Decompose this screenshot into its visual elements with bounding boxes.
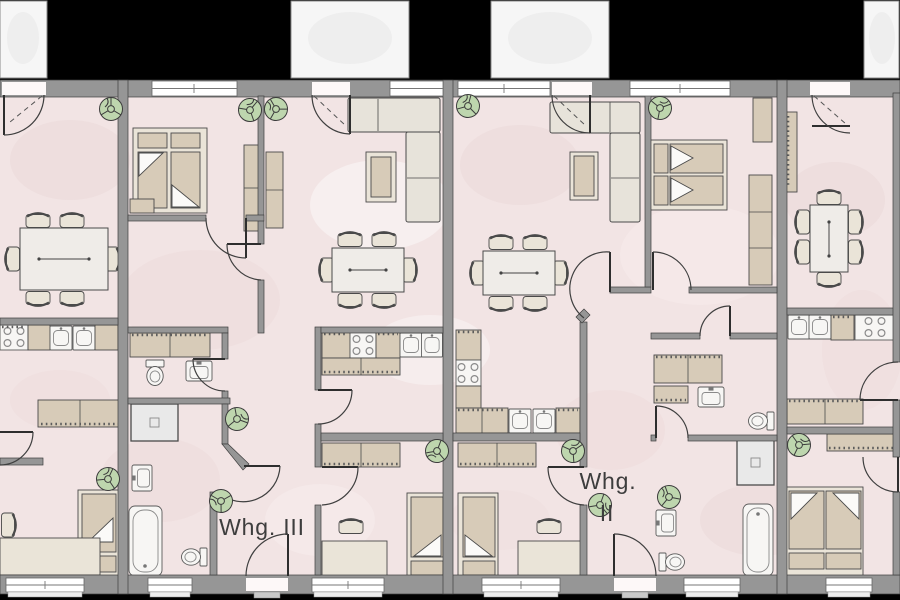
window [152,81,237,96]
desk-chair [339,519,363,533]
sideboard [38,400,122,427]
window [390,81,443,96]
window [458,81,550,96]
double-bed [650,140,727,210]
wardrobe [749,175,772,285]
kitchen-sink-icon [50,326,72,350]
washbasin-icon [132,465,152,491]
floor-plan-canvas: Whg. III Whg. II [0,0,900,600]
window [630,81,730,96]
party-wall [118,80,128,594]
bathtub-icon [743,504,773,576]
party-wall [777,80,787,594]
toilet-icon [182,548,208,566]
dining-chair [817,190,841,204]
dining-chair [523,235,547,249]
dining-chair [26,292,50,306]
wardrobe [753,98,772,142]
window [6,578,84,597]
bathtub-icon [129,506,162,576]
door-opening [810,82,850,95]
coffee-table-top [574,156,594,196]
dining-chair [849,240,863,264]
kitchen-sink-icon [73,326,95,350]
dining-chair [372,294,396,308]
dining-chair [338,232,362,246]
window [148,578,192,597]
dining-chair [60,292,84,306]
kitchen-sink-icon [400,333,422,357]
window [312,578,384,597]
toilet-icon [146,360,164,386]
dining-chair [372,232,396,246]
party-wall [443,80,453,594]
window [826,578,872,597]
dining-chair [523,297,547,311]
shower-icon [737,440,774,485]
single-bed [458,493,498,577]
kitchen-sink-icon [422,333,443,357]
dining-chair [338,294,362,308]
apartment-label-whg3: Whg. III [219,514,305,540]
desk [518,541,583,577]
toilet-icon [749,412,775,430]
double-bed [785,487,863,576]
wardrobe [130,199,154,213]
kitchen-sink-icon [809,315,831,339]
dining-chair [470,261,484,285]
desk-chair [537,519,561,533]
dining-chair [403,258,417,282]
washbasin-icon [656,510,676,536]
plant-icon [100,98,123,121]
floor-plan-page: Whg. III Whg. II [0,0,900,600]
dining-chair [795,210,809,234]
shower-icon [131,404,178,441]
apartment-label-whg2-line1: Whg. [580,468,637,494]
kitchen-counter [0,325,118,350]
washbasin-icon [698,387,724,407]
dining-chair [849,210,863,234]
dining-chair [795,240,809,264]
desk [322,541,387,577]
single-bed [407,493,447,577]
dining-chair [489,297,513,311]
toilet-icon [659,553,685,571]
desk-chair [2,513,16,537]
kitchen-sink-icon [533,409,555,433]
door-opening [552,82,592,95]
dining-chair [817,273,841,287]
kitchen-counter [788,315,896,340]
window [684,578,740,597]
door-opening [312,82,350,95]
door-opening [2,82,46,95]
dining-chair [60,213,84,227]
kitchen-sink-icon [509,409,531,433]
dining-chair [319,258,333,282]
apartment-label-whg2-line2: II [600,500,614,526]
dining-chair [489,235,513,249]
dining-chair [5,247,19,271]
coffee-table-top [371,157,391,197]
kitchen-sink-icon [788,315,810,339]
dining-chair [554,261,568,285]
dining-chair [26,213,50,227]
window [482,578,560,597]
